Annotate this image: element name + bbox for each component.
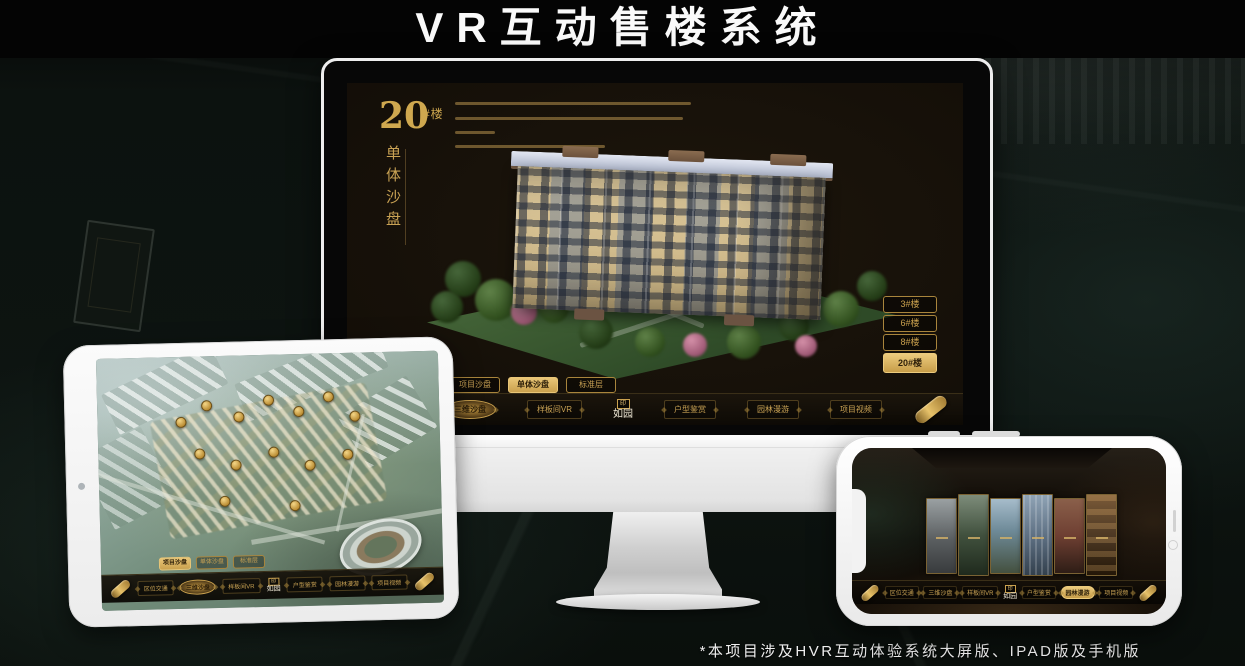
footnote-caption: *本项目涉及HVR互动体验系统大屏版、IPAD版及手机版: [700, 640, 1141, 661]
menu-item-label: 项目视频: [840, 405, 872, 414]
tree: [635, 327, 665, 357]
menu-item-project-video[interactable]: 项目视频: [1099, 586, 1133, 599]
floor-button-20[interactable]: 20#楼: [883, 353, 937, 373]
gallery-panel-interior[interactable]: [1086, 494, 1117, 576]
poster-canvas: VR互动售楼系统 20 #楼 单体沙盘: [0, 0, 1245, 666]
floor-button-6[interactable]: 6#楼: [883, 315, 937, 332]
background-cityscape: [985, 58, 1245, 144]
menu-item-showroom-vr[interactable]: 样板间VR: [527, 400, 582, 419]
menu-item-project-video[interactable]: 项目视频: [830, 400, 882, 419]
menu-item-showroom-vr[interactable]: 样板间VR: [962, 586, 998, 599]
building-model: [512, 151, 826, 335]
menu-item-label: 三维沙盘: [928, 591, 952, 597]
menu-item-garden-roam[interactable]: 园林漫游: [747, 400, 799, 419]
background-plaque-frame: [73, 220, 155, 332]
menu-item-label: 园林漫游: [757, 405, 789, 414]
roof-tower-cap: [562, 146, 598, 158]
phone-device: 区位交通 三维沙盘 样板间VR 印 如园 户型鉴赏 园林漫游 项目视频: [836, 436, 1182, 626]
scroll-handle-icon[interactable]: [1138, 583, 1158, 602]
phone-camera-ring: [1168, 540, 1178, 550]
brand-logo-text: 如园: [613, 410, 633, 420]
page-title: VR互动售楼系统: [0, 0, 1245, 58]
monitor-base: [556, 594, 760, 610]
building-number-heading: 20: [379, 95, 429, 137]
menu-item-floorplans[interactable]: 户型鉴赏: [664, 400, 716, 419]
building-number-suffix: #楼: [423, 105, 444, 122]
floor-button-3[interactable]: 3#楼: [883, 296, 937, 313]
menu-item-garden-roam[interactable]: 园林漫游: [329, 575, 365, 591]
tree: [823, 291, 859, 327]
menu-item-floorplans[interactable]: 户型鉴赏: [287, 577, 323, 593]
tablet-device: 项目沙盘 单体沙盘 标准层 区位交通 三维沙盘 样板间VR 印 如园 户型鉴赏 …: [63, 336, 460, 627]
brand-logo: 印 如园: [613, 399, 633, 420]
menu-item-label: 区位交通: [890, 591, 914, 597]
entrance-canopy: [724, 314, 754, 326]
menu-item-label: 园林漫游: [335, 582, 359, 589]
phone-screen: 区位交通 三维沙盘 样板间VR 印 如园 户型鉴赏 园林漫游 项目视频: [852, 448, 1166, 614]
menu-item-label: 样板间VR: [537, 405, 572, 414]
entrance-canopy: [574, 308, 604, 320]
flower-bush: [683, 333, 707, 357]
gallery-panel-courtyard[interactable]: [926, 498, 957, 574]
menu-item-project-video[interactable]: 项目视频: [371, 574, 407, 590]
tab-standard-floor[interactable]: 标准层: [233, 555, 265, 569]
seal-icon: 印: [617, 399, 630, 409]
menu-item-3d-sandbox[interactable]: 三维沙盘: [180, 579, 216, 595]
menu-item-label: 项目视频: [377, 581, 401, 588]
tab-project-sandbox[interactable]: 项目沙盘: [159, 557, 191, 571]
flower-bush: [795, 335, 817, 357]
menu-item-label: 项目视频: [1104, 591, 1128, 597]
brand-logo: 印 如园: [1003, 585, 1017, 600]
roof-tower-cap: [770, 154, 806, 166]
tree: [431, 291, 463, 323]
menu-item-3d-sandbox[interactable]: 三维沙盘: [923, 586, 957, 599]
scroll-handle-icon[interactable]: [860, 583, 880, 602]
menu-item-label: 户型鉴赏: [674, 405, 706, 414]
brand-logo: 印 如园: [266, 578, 280, 593]
monitor-stand: [594, 512, 722, 602]
gallery-panel-autumn[interactable]: [1054, 498, 1085, 574]
menu-item-location[interactable]: 区位交通: [885, 586, 919, 599]
floor-button-8[interactable]: 8#楼: [883, 334, 937, 351]
building-facade: [512, 166, 825, 320]
intro-text-line: [455, 131, 495, 134]
menu-item-label: 户型鉴赏: [293, 583, 317, 590]
menu-item-label: 区位交通: [144, 586, 168, 593]
scroll-handle-icon[interactable]: [109, 578, 131, 599]
brand-logo-text: 如园: [1003, 593, 1017, 600]
phone-notch: [852, 489, 866, 573]
tab-single-sandbox[interactable]: 单体沙盘: [196, 556, 228, 570]
main-menu-bar: 区位交通 三维沙盘 样板间VR 印 如园 户型鉴赏 园林漫游 项目视频: [852, 580, 1166, 604]
brand-logo-text: 如园: [267, 586, 281, 593]
menu-item-label: 三维沙盘: [186, 585, 210, 592]
menu-item-showroom-vr[interactable]: 样板间VR: [222, 578, 261, 594]
sandbox-tab-row: 项目沙盘 单体沙盘 标准层: [159, 555, 265, 571]
gallery-panel-building[interactable]: [1022, 494, 1053, 576]
tablet-screen: 项目沙盘 单体沙盘 标准层 区位交通 三维沙盘 样板间VR 印 如园 户型鉴赏 …: [96, 351, 444, 611]
menu-item-location[interactable]: 区位交通: [138, 580, 174, 596]
intro-text-line: [455, 102, 691, 105]
menu-item-garden-roam[interactable]: 园林漫游: [1061, 586, 1095, 599]
scroll-handle-icon[interactable]: [413, 571, 435, 592]
tab-project-sandbox[interactable]: 项目沙盘: [450, 377, 500, 393]
gallery-panel-garden[interactable]: [958, 494, 989, 576]
building-3d-sandbox: [427, 143, 902, 383]
heading-divider: [405, 149, 406, 245]
menu-item-label: 样板间VR: [967, 591, 993, 597]
roof-tower-cap: [668, 150, 704, 162]
tab-standard-floor[interactable]: 标准层: [566, 377, 616, 393]
menu-item-label: 三维沙盘: [454, 405, 486, 414]
phone-volume-button: [928, 431, 960, 437]
intro-text-line: [455, 117, 683, 120]
menu-item-label: 样板间VR: [228, 584, 254, 591]
phone-power-button: [972, 431, 1020, 437]
menu-item-label: 户型鉴赏: [1027, 591, 1051, 597]
sandbox-tab-row: 项目沙盘 单体沙盘 标准层: [450, 377, 616, 393]
menu-item-floorplans[interactable]: 户型鉴赏: [1022, 586, 1056, 599]
gallery-panel-landscape[interactable]: [990, 498, 1021, 574]
menu-item-label: 园林漫游: [1066, 591, 1090, 597]
tablet-camera: [78, 483, 85, 490]
phone-side-button: [1173, 510, 1176, 532]
ceiling-beam: [912, 448, 1112, 468]
tab-single-sandbox[interactable]: 单体沙盘: [508, 377, 558, 393]
section-subtitle-vertical: 单体沙盘: [383, 145, 404, 255]
scroll-handle-icon[interactable]: [913, 393, 949, 425]
